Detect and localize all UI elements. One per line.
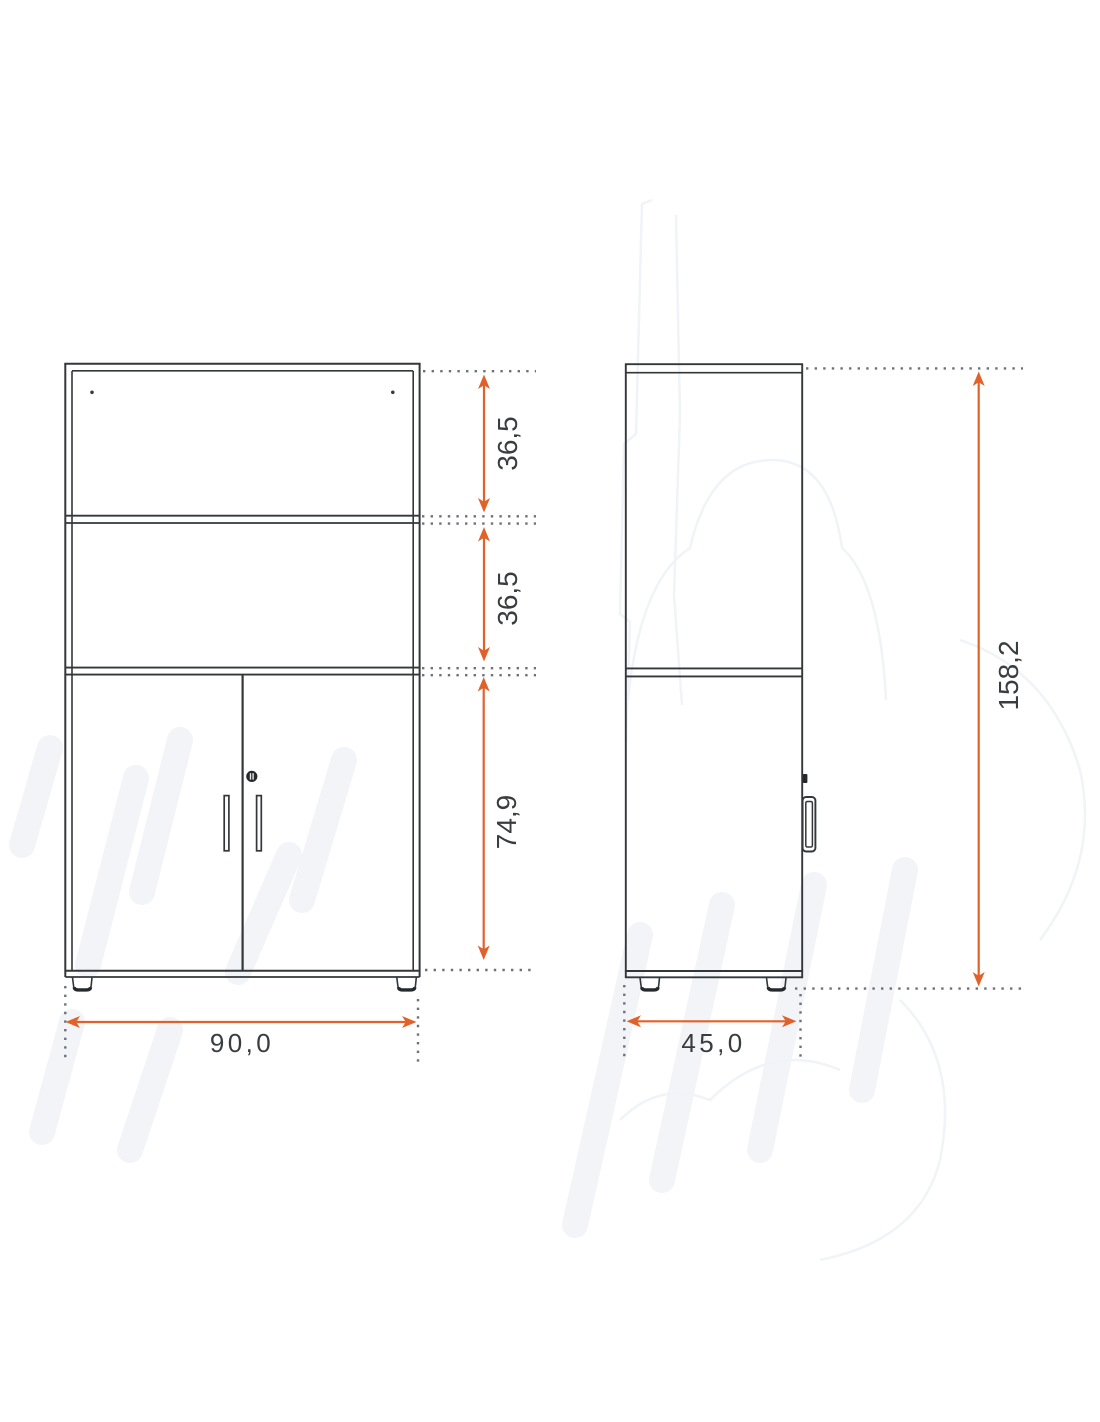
svg-text:90,0: 90,0: [210, 1028, 274, 1058]
svg-text:74,9: 74,9: [491, 795, 522, 850]
svg-text:36,5: 36,5: [492, 571, 523, 626]
svg-text:36,5: 36,5: [492, 416, 523, 471]
svg-text:158,2: 158,2: [993, 640, 1024, 710]
svg-text:45,0: 45,0: [681, 1028, 745, 1058]
